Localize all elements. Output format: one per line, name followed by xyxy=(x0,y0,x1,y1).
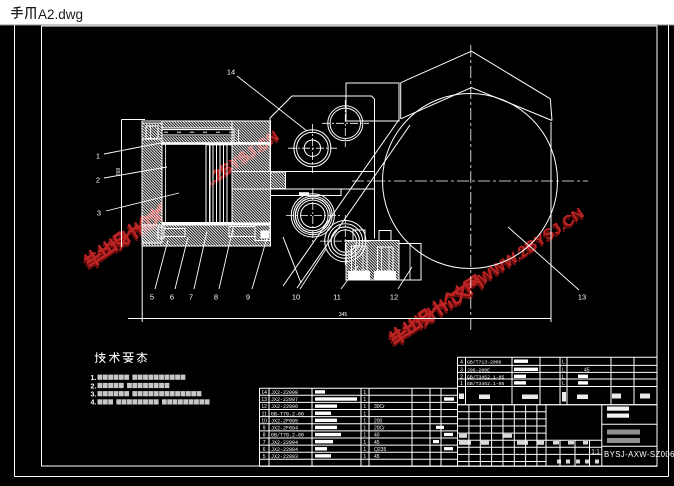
svg-text:JX2-2F095: JX2-2F095 xyxy=(271,418,298,424)
svg-text:JX2-22093: JX2-22093 xyxy=(271,454,298,460)
svg-text:8: 8 xyxy=(263,433,266,439)
svg-text:J96-200E: J96-200E xyxy=(467,368,490,374)
svg-text:1: 1 xyxy=(363,433,366,439)
svg-text:13: 13 xyxy=(261,397,267,403)
svg-text:12: 12 xyxy=(390,293,398,302)
svg-text:1: 1 xyxy=(363,454,366,460)
svg-text:1: 1 xyxy=(363,404,366,410)
svg-text:JX2-22094: JX2-22094 xyxy=(271,440,298,446)
svg-text:10: 10 xyxy=(292,293,300,302)
svg-text:30Cr: 30Cr xyxy=(374,404,385,410)
svg-text:20Cr: 20Cr xyxy=(374,426,385,432)
svg-text:GB/T713-2008: GB/T713-2008 xyxy=(467,360,502,366)
svg-text:7: 7 xyxy=(263,440,266,446)
svg-text:1: 1 xyxy=(363,447,366,453)
svg-text:45: 45 xyxy=(584,368,590,374)
svg-text:2.: 2. xyxy=(91,383,97,390)
svg-text:40: 40 xyxy=(374,433,380,439)
svg-text:5: 5 xyxy=(263,454,266,460)
svg-text:12: 12 xyxy=(261,404,267,410)
svg-text:JX2-22084: JX2-22084 xyxy=(271,447,298,453)
svg-text:345: 345 xyxy=(339,312,348,318)
svg-text:11: 11 xyxy=(333,293,341,302)
svg-text:3.: 3. xyxy=(91,392,97,399)
svg-text:1: 1 xyxy=(363,390,366,396)
svg-text:13: 13 xyxy=(578,293,586,302)
svg-text:45: 45 xyxy=(374,440,380,446)
svg-text:1: 1 xyxy=(363,411,366,417)
svg-text:1: 1 xyxy=(363,397,366,403)
svg-text:1: 1 xyxy=(363,426,366,432)
svg-text:200: 200 xyxy=(374,418,383,424)
svg-text:JX2-22098: JX2-22098 xyxy=(271,390,298,396)
svg-text:BYSJ-AXW-SZ006: BYSJ-AXW-SZ006 xyxy=(604,450,674,459)
svg-text:5: 5 xyxy=(150,293,154,302)
svg-text:7: 7 xyxy=(189,293,193,302)
svg-text:3: 3 xyxy=(460,368,463,374)
svg-text:GB-T70.2-00: GB-T70.2-00 xyxy=(271,411,304,417)
svg-text:1: 1 xyxy=(96,152,100,161)
svg-text:14: 14 xyxy=(261,390,267,396)
svg-text:1.: 1. xyxy=(91,375,97,382)
svg-text:GB/T3452.1-05: GB/T3452.1-05 xyxy=(467,375,505,381)
svg-text:GB/T70.2-00: GB/T70.2-00 xyxy=(271,433,304,439)
svg-text:10: 10 xyxy=(261,418,267,424)
svg-text:L: L xyxy=(562,360,565,366)
svg-text:2: 2 xyxy=(460,375,463,381)
svg-text:6: 6 xyxy=(170,293,174,302)
svg-text:11: 11 xyxy=(262,411,267,417)
svg-text:JX2-2F094: JX2-2F094 xyxy=(271,426,298,432)
svg-text:JX2-22096: JX2-22096 xyxy=(271,404,298,410)
svg-text:GB/T3452.1-05: GB/T3452.1-05 xyxy=(467,381,505,387)
svg-text:6: 6 xyxy=(263,447,266,453)
svg-text:L: L xyxy=(562,368,565,374)
svg-text:14: 14 xyxy=(227,68,235,77)
svg-text:L: L xyxy=(562,381,565,387)
svg-text:1: 1 xyxy=(363,440,366,446)
svg-text:3: 3 xyxy=(97,209,101,218)
svg-text:L: L xyxy=(562,375,565,381)
svg-text:9: 9 xyxy=(246,293,250,302)
svg-text:2: 2 xyxy=(96,176,100,185)
svg-text:1: 1 xyxy=(363,418,366,424)
svg-text:8: 8 xyxy=(214,293,218,302)
svg-text:4.: 4. xyxy=(91,400,97,407)
svg-text:JX2-22097: JX2-22097 xyxy=(271,397,298,403)
svg-text:45: 45 xyxy=(374,454,380,460)
svg-text:1:1: 1:1 xyxy=(591,450,600,456)
svg-text:4: 4 xyxy=(460,360,463,366)
svg-text:Q235: Q235 xyxy=(374,447,386,453)
svg-text:1: 1 xyxy=(460,381,463,387)
svg-text:9: 9 xyxy=(263,426,266,432)
svg-text:A2.dwg: A2.dwg xyxy=(38,7,83,22)
